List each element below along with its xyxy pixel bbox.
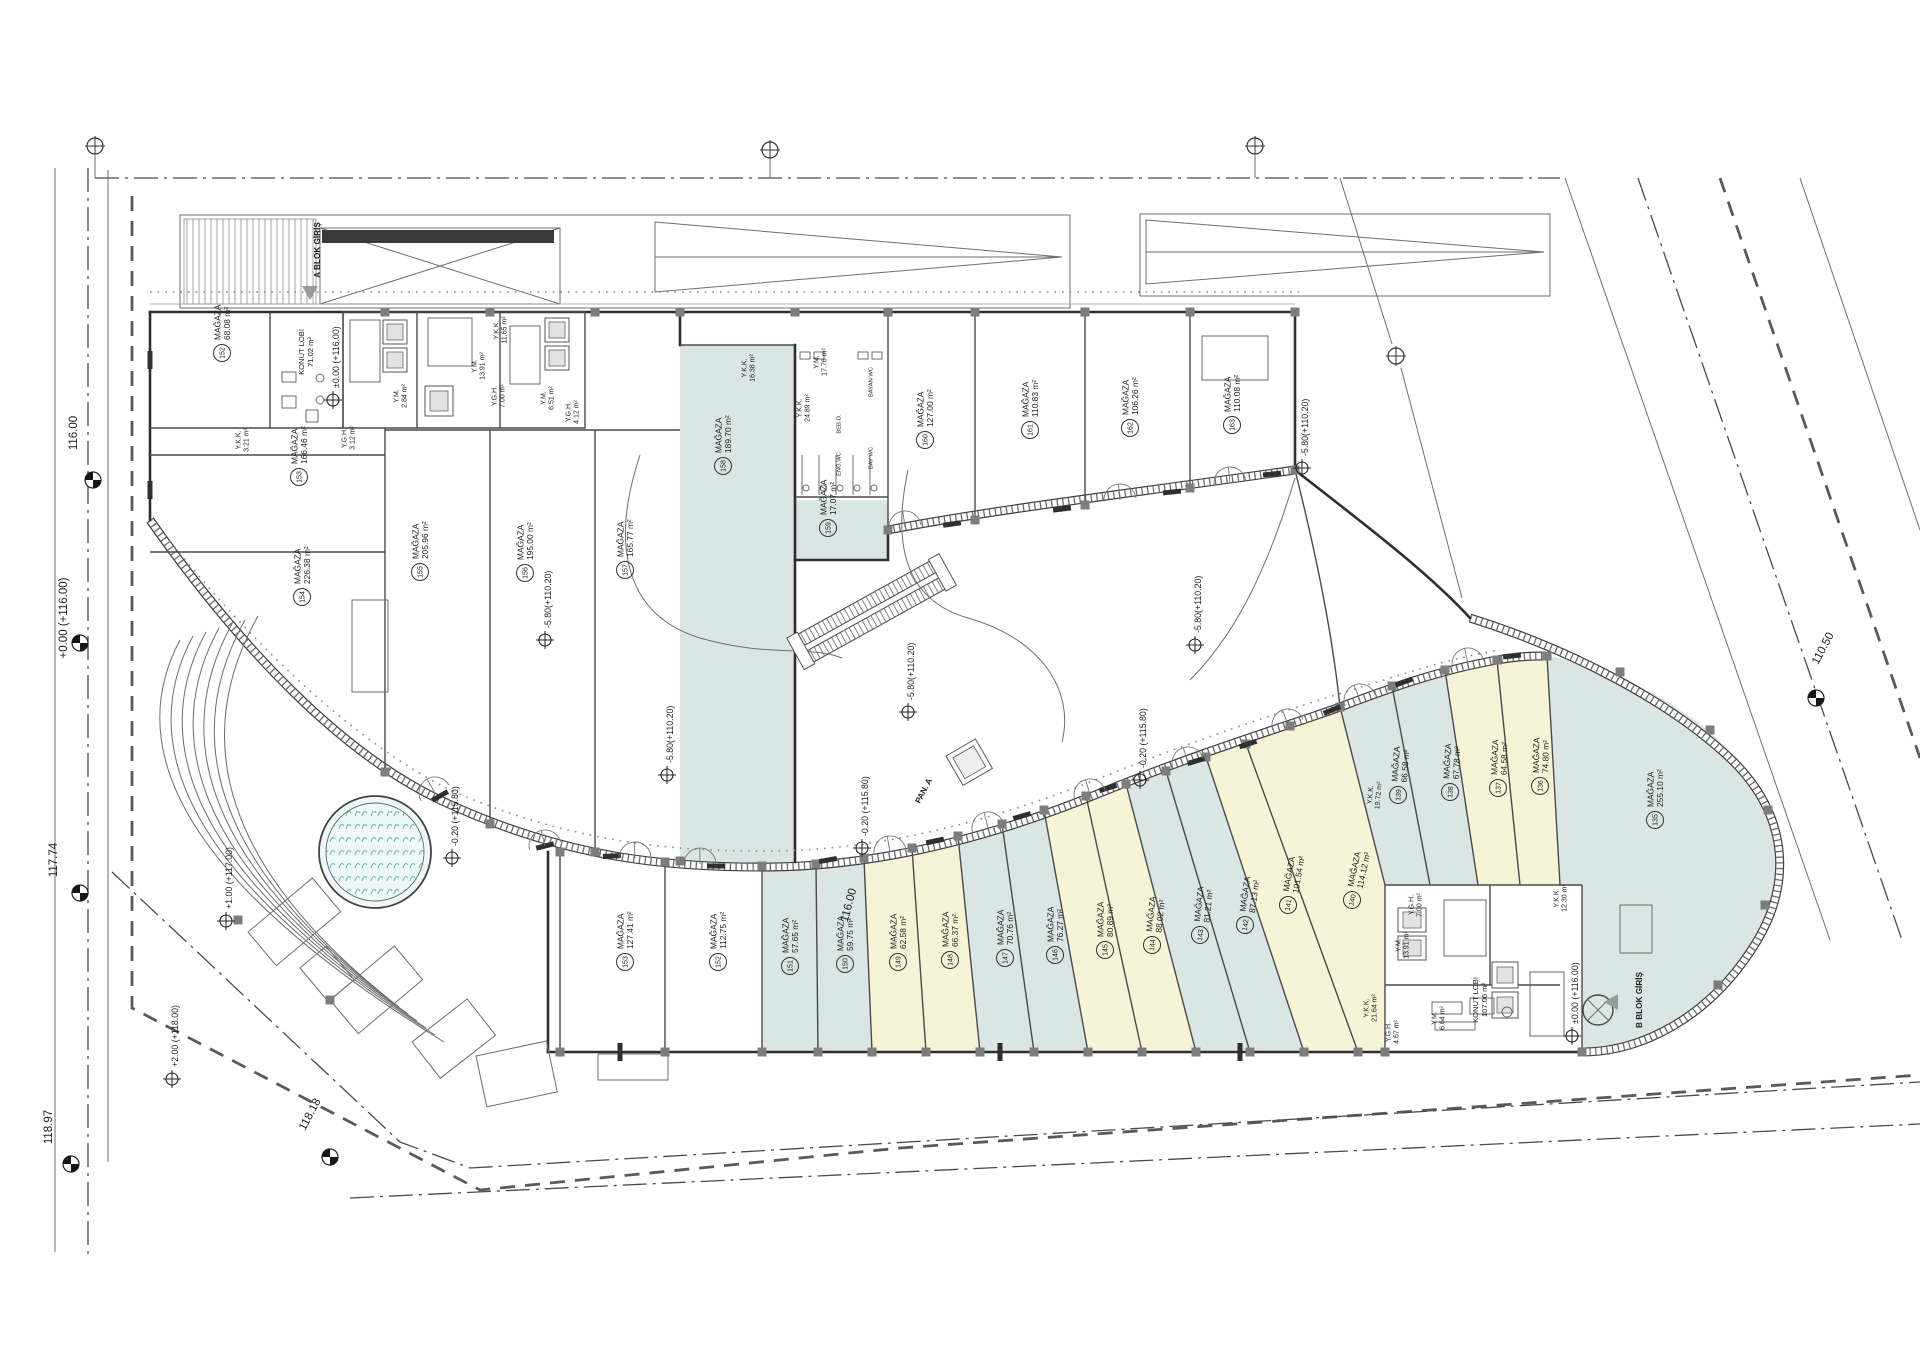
stair-icon — [1202, 336, 1268, 380]
svg-text:Y.G.H.: Y.G.H. — [1386, 1022, 1393, 1042]
svg-text:MAĞAZA: MAĞAZA — [1046, 906, 1056, 942]
svg-text:Y.G.H.: Y.G.H. — [1409, 895, 1416, 915]
svg-text:136: 136 — [1537, 780, 1544, 792]
column — [234, 916, 243, 925]
svg-text:64.58 m²: 64.58 m² — [1498, 742, 1509, 776]
pool — [319, 796, 431, 908]
column — [676, 308, 685, 317]
svg-text:±0.00 (+116.00): ±0.00 (+116.00) — [1570, 962, 1580, 1024]
column — [1616, 668, 1625, 677]
svg-text:MAĞAZA: MAĞAZA — [411, 523, 421, 559]
room-label: KONUT LOBİ71.02 m² — [297, 329, 315, 375]
entrance-label: A BLOK GİRİŞ — [312, 222, 322, 278]
door-tag — [148, 351, 153, 369]
svg-text:-5.80(+110.20): -5.80(+110.20) — [1300, 399, 1310, 456]
svg-text:Y.G.H.: Y.G.H. — [342, 428, 349, 448]
svg-text:Y.M.: Y.M. — [1432, 1011, 1439, 1025]
svg-text:158: 158 — [721, 460, 728, 472]
svg-text:MAĞAZA: MAĞAZA — [1096, 901, 1106, 937]
svg-text:Y.K.K.: Y.K.K. — [742, 358, 749, 377]
stair-icon — [428, 318, 472, 366]
svg-text:71.02 m²: 71.02 m² — [306, 337, 315, 367]
svg-text:MAĞAZA: MAĞAZA — [1021, 381, 1031, 417]
room-label: Y.K.K.11.65 m² — [494, 316, 509, 344]
dimension-label: 116.00 — [68, 416, 80, 450]
svg-text:MAĞAZA: MAĞAZA — [819, 479, 829, 515]
column — [1543, 652, 1552, 661]
shop-label: 162MAĞAZA106.26 m² — [1121, 377, 1141, 436]
room-label: BAY WC — [869, 447, 875, 469]
svg-text:153: 153 — [623, 956, 630, 968]
shop-label: 156MAĞAZA195.00 m² — [516, 522, 536, 581]
room-label: BEB.Ö. — [836, 414, 843, 434]
svg-text:BAYAN WC: BAYAN WC — [869, 367, 875, 397]
svg-text:B BLOK GİRİŞ: B BLOK GİRİŞ — [1634, 971, 1644, 1027]
column — [1381, 1048, 1390, 1057]
column — [860, 854, 869, 863]
svg-text:57.65 m²: 57.65 m² — [790, 920, 800, 953]
dimension-label: +0.00 (+116.00) — [58, 577, 70, 658]
svg-text:116.00: 116.00 — [68, 416, 80, 450]
dimension-label: 118.97 — [43, 1110, 55, 1144]
room-label: Y.M.6.51 m² — [541, 385, 556, 409]
svg-text:3.21 m²: 3.21 m² — [244, 427, 251, 451]
svg-text:Y.K.K.: Y.K.K. — [797, 398, 804, 417]
svg-text:BEB.Ö.: BEB.Ö. — [836, 414, 843, 434]
svg-text:Y.M.: Y.M. — [541, 391, 548, 405]
svg-text:BAY WC: BAY WC — [869, 447, 875, 469]
door-tag — [603, 853, 621, 859]
door-tag — [998, 1043, 1003, 1061]
svg-text:7.00 m²: 7.00 m² — [1417, 892, 1424, 916]
svg-text:Y.K.K.: Y.K.K. — [236, 430, 243, 449]
svg-text:157: 157 — [623, 564, 630, 576]
shop-label: 163MAĞAZA110.08 m² — [1223, 375, 1243, 434]
column — [326, 996, 335, 1005]
shop-label: 157MAĞAZA165.77 m² — [616, 519, 636, 578]
column — [661, 858, 670, 867]
svg-text:24.89 m²: 24.89 m² — [805, 394, 812, 422]
column — [486, 820, 495, 829]
svg-text:Y.G.H.: Y.G.H. — [492, 386, 499, 406]
svg-text:MAĞAZA: MAĞAZA — [1121, 379, 1131, 415]
column — [591, 308, 600, 317]
svg-text:127.00 m²: 127.00 m² — [925, 389, 935, 427]
svg-text:67.78 m²: 67.78 m² — [1451, 746, 1463, 780]
column — [1138, 1048, 1147, 1057]
column — [1761, 901, 1770, 910]
shop-135-fill — [1547, 656, 1776, 1052]
svg-text:3.12 m²: 3.12 m² — [350, 425, 357, 449]
svg-text:MAĞAZA: MAĞAZA — [1646, 771, 1656, 807]
stair-icon — [350, 320, 380, 382]
svg-text:144: 144 — [1149, 939, 1157, 951]
stair-icon — [352, 600, 388, 692]
svg-text:Y.M.: Y.M. — [394, 389, 401, 403]
room-label: Y.K.K.12.30 m² — [1554, 884, 1569, 912]
entrance-label: B BLOK GİRİŞ — [1634, 971, 1644, 1027]
room-label: ENG.WC — [837, 452, 843, 476]
room-label: Y.M.2.84 m² — [394, 383, 409, 407]
column — [486, 308, 495, 317]
shop-label: 153MAĞAZA127.41 m² — [616, 911, 636, 970]
column — [1040, 806, 1049, 815]
svg-text:MAĞAZA: MAĞAZA — [290, 428, 300, 464]
svg-text:68.08 m²: 68.08 m² — [222, 307, 232, 340]
dimension-label: 110.50 — [1810, 631, 1837, 667]
room-label: Y.M.13.91 m² — [472, 352, 487, 380]
dimension-label: 118.18 — [297, 1097, 324, 1133]
room-label: BAYAN WC — [869, 367, 875, 397]
svg-text:143: 143 — [1197, 929, 1205, 941]
svg-text:MAĞAZA: MAĞAZA — [916, 391, 926, 427]
column — [1030, 1048, 1039, 1057]
elevation-marker: -5.80(+110.20) — [1186, 576, 1204, 654]
column — [1192, 1048, 1201, 1057]
column — [976, 1048, 985, 1057]
svg-text:MAĞAZA: MAĞAZA — [616, 913, 626, 949]
svg-text:110.83 m²: 110.83 m² — [1030, 380, 1040, 417]
svg-text:110.08 m²: 110.08 m² — [1232, 375, 1242, 412]
svg-text:MAĞAZA: MAĞAZA — [781, 917, 791, 953]
svg-text:MAĞAZA: MAĞAZA — [941, 911, 951, 947]
svg-text:MAĞAZA: MAĞAZA — [714, 417, 724, 453]
door-tag — [618, 1043, 623, 1061]
elevation-marker: +2.00 (+118.00) — [163, 1005, 181, 1088]
svg-text:80.89 m²: 80.89 m² — [1105, 904, 1115, 937]
column — [791, 308, 800, 317]
shop-label: 152MAĞAZA112.75 m² — [709, 912, 729, 971]
column — [1578, 1048, 1587, 1057]
svg-text:160: 160 — [923, 434, 930, 446]
svg-text:110.50: 110.50 — [1810, 631, 1837, 667]
column — [922, 1048, 931, 1057]
ramp-title-tag — [322, 230, 554, 243]
door-tag — [148, 481, 153, 499]
svg-text:152: 152 — [220, 347, 227, 359]
entrance-label: PAN. A — [914, 777, 935, 805]
svg-text:+0.00 (+116.00): +0.00 (+116.00) — [58, 577, 70, 658]
column — [868, 1048, 877, 1057]
svg-text:137: 137 — [1495, 782, 1502, 794]
column — [1706, 726, 1715, 735]
column — [971, 516, 980, 525]
svg-text:145: 145 — [1103, 944, 1110, 956]
svg-text:74.80 m²: 74.80 m² — [1540, 740, 1551, 773]
svg-text:-0.20 (+115.80): -0.20 (+115.80) — [860, 776, 870, 836]
svg-text:MAĞAZA: MAĞAZA — [213, 304, 223, 340]
floor-plan-drawing: 152MAĞAZA68.08 m²153MAĞAZA166.46 m²154MA… — [0, 0, 1920, 1358]
column — [1354, 1048, 1363, 1057]
svg-text:166.46 m²: 166.46 m² — [299, 426, 309, 464]
svg-text:-5.80(+110.20): -5.80(+110.20) — [665, 706, 675, 763]
svg-text:ENG.WC: ENG.WC — [837, 452, 843, 476]
floor-plan-page: 152MAĞAZA68.08 m²153MAĞAZA166.46 m²154MA… — [0, 0, 1920, 1358]
column — [1186, 308, 1195, 317]
panoramic-elevator-icon — [946, 739, 992, 785]
column — [1493, 656, 1502, 665]
column — [758, 862, 767, 871]
room-label: Y.G.H.3.12 m² — [342, 425, 357, 449]
svg-text:MAĞAZA: MAĞAZA — [616, 521, 626, 557]
svg-text:154: 154 — [300, 591, 307, 603]
svg-text:6.51 m²: 6.51 m² — [549, 385, 556, 409]
svg-text:159: 159 — [826, 522, 833, 534]
svg-text:4.67 m²: 4.67 m² — [1394, 1019, 1401, 1043]
column — [1122, 780, 1131, 789]
svg-text:MAĞAZA: MAĞAZA — [1223, 376, 1233, 412]
column — [591, 848, 600, 857]
svg-text:Y.M.: Y.M. — [472, 359, 479, 373]
dimension-label: 117.74 — [48, 842, 60, 877]
shop-159-fill — [795, 500, 888, 560]
svg-text:Y.K.K.: Y.K.K. — [494, 320, 501, 339]
svg-text:135: 135 — [1653, 814, 1660, 826]
column — [661, 1048, 670, 1057]
elevation-marker: -5.80(+110.20) — [658, 706, 676, 784]
svg-text:255.10 m²: 255.10 m² — [1655, 769, 1665, 807]
column — [1291, 308, 1300, 317]
svg-text:21.64 m²: 21.64 m² — [1372, 994, 1379, 1022]
column — [381, 308, 390, 317]
svg-text:17.76 m²: 17.76 m² — [822, 348, 829, 376]
column — [556, 848, 565, 857]
column — [1714, 981, 1723, 990]
svg-text:MAĞAZA: MAĞAZA — [709, 913, 719, 949]
elevation-marker: -5.80(+110.20) — [536, 571, 554, 649]
shop-label: 161MAĞAZA110.83 m² — [1021, 380, 1041, 439]
svg-text:-5.80(+110.20): -5.80(+110.20) — [906, 643, 916, 700]
svg-text:139: 139 — [1395, 789, 1403, 801]
svg-text:147: 147 — [1003, 952, 1010, 964]
svg-text:62.58 m²: 62.58 m² — [898, 916, 908, 949]
svg-text:107.06 m²: 107.06 m² — [1480, 982, 1489, 1017]
column — [1246, 1048, 1255, 1057]
column — [1081, 501, 1090, 510]
svg-text:138: 138 — [1447, 786, 1455, 798]
column — [1081, 308, 1090, 317]
shop-158-fill — [680, 345, 795, 865]
column — [884, 308, 893, 317]
svg-text:16.38 m²: 16.38 m² — [750, 354, 757, 382]
room-label: Y.G.H.4.12 m² — [566, 399, 581, 423]
svg-text:226.38 m²: 226.38 m² — [302, 546, 312, 584]
svg-text:Y.K.K.: Y.K.K. — [1364, 998, 1371, 1017]
svg-text:127.41 m²: 127.41 m² — [625, 911, 635, 949]
svg-text:205.96 m²: 205.96 m² — [420, 521, 430, 559]
svg-text:11.65 m²: 11.65 m² — [502, 316, 509, 344]
room-label: Y.K.K.3.21 m² — [236, 427, 251, 451]
column — [1300, 1048, 1309, 1057]
column — [556, 1048, 565, 1057]
svg-text:155: 155 — [418, 566, 425, 578]
svg-text:195.00 m²: 195.00 m² — [525, 522, 535, 560]
stair-icon — [510, 326, 540, 384]
room-label: Y.M.6.64 m² — [1432, 1005, 1447, 1029]
svg-text:+2.00 (+118.00): +2.00 (+118.00) — [170, 1005, 180, 1067]
svg-text:MAĞAZA: MAĞAZA — [516, 524, 526, 560]
svg-text:KONUT LOBİ: KONUT LOBİ — [1471, 977, 1480, 1023]
svg-text:MAĞAZA: MAĞAZA — [889, 913, 899, 949]
column — [814, 1048, 823, 1057]
shop-label: 154MAĞAZA226.38 m² — [293, 546, 313, 605]
column — [1186, 484, 1195, 493]
svg-text:70.76 m²: 70.76 m² — [1005, 912, 1015, 945]
escalator-icon — [787, 554, 957, 670]
elevation-marker: ±0.00 (+116.00) — [324, 326, 342, 409]
room-label: Y.G.H.7.00 m² — [1409, 892, 1424, 916]
column — [1441, 666, 1450, 675]
svg-text:13.91 m²: 13.91 m² — [480, 352, 487, 380]
svg-text:MAĞAZA: MAĞAZA — [996, 909, 1006, 945]
svg-text:117.74: 117.74 — [48, 842, 60, 877]
svg-text:-0.20 (+115.80): -0.20 (+115.80) — [1138, 708, 1148, 768]
room-label: KONUT LOBİ107.06 m² — [1471, 977, 1489, 1023]
svg-text:162: 162 — [1128, 422, 1135, 434]
svg-text:112.75 m²: 112.75 m² — [718, 912, 728, 949]
svg-text:118.18: 118.18 — [297, 1097, 324, 1133]
svg-text:A BLOK GİRİŞ: A BLOK GİRİŞ — [312, 222, 322, 278]
svg-text:4.12 m²: 4.12 m² — [574, 399, 581, 423]
svg-text:-5.80(+110.20): -5.80(+110.20) — [543, 571, 553, 628]
svg-text:MAĞAZA: MAĞAZA — [293, 548, 303, 584]
svg-text:17.07 m²: 17.07 m² — [828, 482, 838, 515]
svg-text:-5.80(+110.20): -5.80(+110.20) — [1193, 576, 1203, 633]
svg-text:12.30 m²: 12.30 m² — [1562, 884, 1569, 912]
room-label: Y.G.H.7.00 m² — [492, 383, 507, 407]
svg-text:106.26 m²: 106.26 m² — [1130, 377, 1140, 415]
column — [1764, 806, 1773, 815]
svg-text:151: 151 — [788, 960, 795, 972]
svg-text:189.70 m²: 189.70 m² — [723, 415, 733, 453]
svg-text:6.64 m²: 6.64 m² — [1440, 1005, 1447, 1029]
svg-text:148: 148 — [948, 954, 955, 966]
svg-text:±0.00 (+116.00): ±0.00 (+116.00) — [331, 326, 341, 388]
svg-text:13.91 m²: 13.91 m² — [1404, 931, 1411, 959]
column — [1084, 1048, 1093, 1057]
svg-text:66.37 m²: 66.37 m² — [950, 914, 960, 947]
elevation-marker: -5.80(+110.20) — [899, 643, 917, 721]
shop-label: 160MAĞAZA127.00 m² — [916, 389, 936, 448]
column — [971, 308, 980, 317]
svg-text:161: 161 — [1028, 424, 1035, 436]
svg-text:149: 149 — [896, 956, 903, 968]
svg-text:118.97: 118.97 — [43, 1110, 55, 1144]
door-tag — [1238, 1043, 1243, 1061]
svg-text:-0.20 (+115.80): -0.20 (+115.80) — [450, 786, 460, 846]
shop-label: 152MAĞAZA68.08 m² — [213, 304, 233, 361]
column — [908, 844, 917, 853]
svg-text:150: 150 — [843, 958, 850, 970]
svg-text:+1.00 (+117.00): +1.00 (+117.00) — [224, 847, 234, 909]
svg-text:Y.G.H.: Y.G.H. — [566, 402, 573, 422]
svg-text:146: 146 — [1053, 949, 1060, 961]
column — [381, 768, 390, 777]
elevation-marker: ±0.00 (+116.00) — [1563, 962, 1581, 1045]
svg-text:PAN. A: PAN. A — [914, 777, 935, 805]
svg-text:76.27 m²: 76.27 m² — [1055, 909, 1065, 942]
column — [884, 526, 893, 535]
column — [676, 857, 685, 866]
svg-text:156: 156 — [523, 567, 530, 579]
stair-icon — [1444, 900, 1486, 956]
shop-label: 155MAĞAZA205.96 m² — [411, 521, 431, 580]
svg-text:7.00 m²: 7.00 m² — [500, 383, 507, 407]
stair-icon — [1530, 972, 1564, 1036]
room-label: Y.K.K.24.89 m² — [797, 394, 812, 422]
svg-text:152: 152 — [716, 956, 723, 968]
svg-text:Y.K.K.: Y.K.K. — [1554, 888, 1561, 907]
svg-text:2.84 m²: 2.84 m² — [402, 383, 409, 407]
shop-label: 153MAĞAZA166.46 m² — [290, 426, 310, 485]
svg-text:KONUT LOBİ: KONUT LOBİ — [297, 329, 306, 375]
svg-text:Y.M.: Y.M. — [1396, 938, 1403, 952]
column — [1162, 767, 1171, 776]
room-label: Y.G.H.4.67 m² — [1386, 1019, 1401, 1043]
column — [758, 1048, 767, 1057]
door-tag — [707, 864, 725, 869]
svg-text:153: 153 — [297, 471, 304, 483]
svg-text:165.77 m²: 165.77 m² — [625, 519, 635, 557]
svg-text:Y.M.: Y.M. — [814, 355, 821, 369]
svg-text:163: 163 — [1230, 419, 1237, 431]
parking-ramp-band — [150, 214, 1550, 308]
column — [954, 832, 963, 841]
